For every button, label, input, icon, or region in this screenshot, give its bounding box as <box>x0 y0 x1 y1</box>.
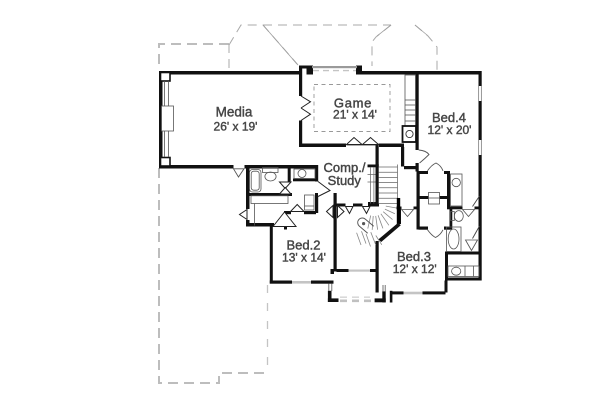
svg-text:13' x 14': 13' x 14' <box>282 250 326 264</box>
svg-text:26' x 19': 26' x 19' <box>214 120 258 134</box>
svg-text:12' x 20': 12' x 20' <box>428 123 472 137</box>
svg-text:Media: Media <box>216 105 253 120</box>
svg-text:Study: Study <box>328 173 362 188</box>
svg-text:21' x 14': 21' x 14' <box>333 108 377 122</box>
svg-text:12' x 12': 12' x 12' <box>393 262 437 276</box>
